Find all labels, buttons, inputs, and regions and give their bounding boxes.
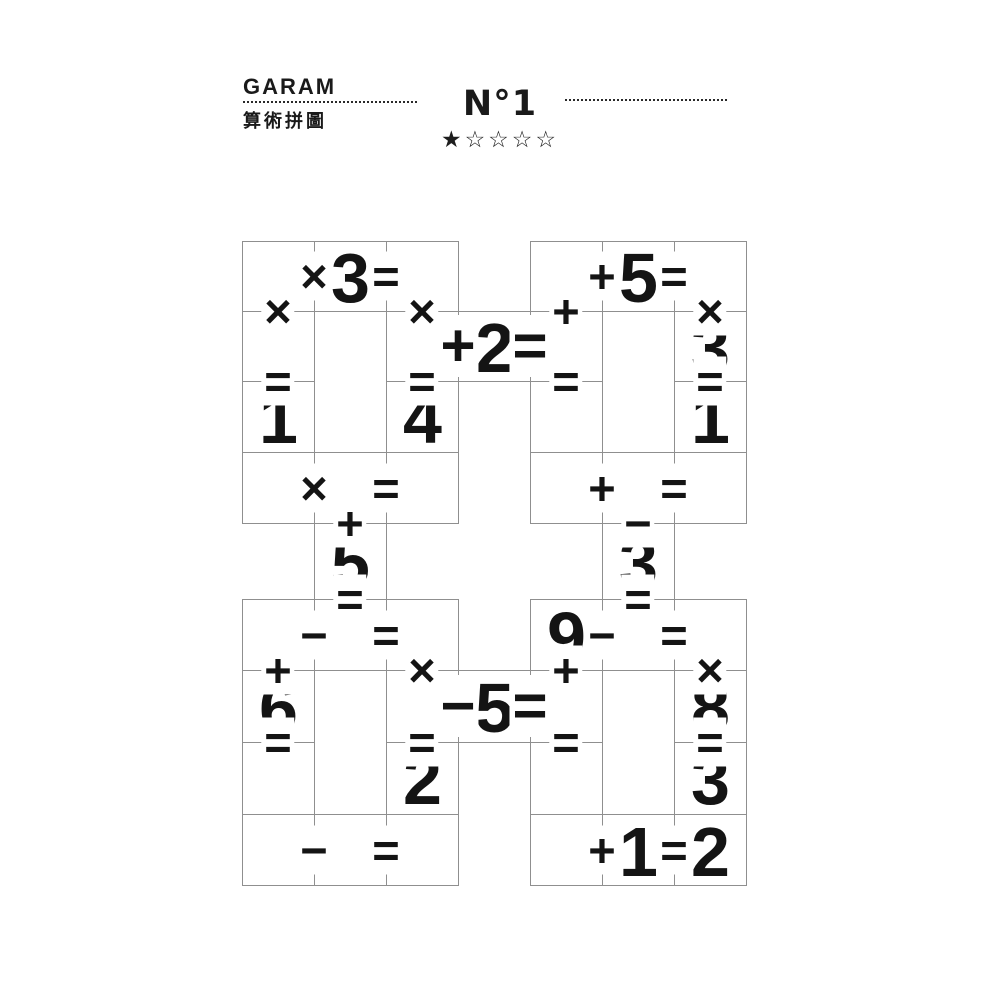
- minus-operator: −: [437, 675, 478, 737]
- plus-operator: +: [549, 646, 582, 695]
- cell-r6c5[interactable]: [602, 670, 675, 815]
- cell-r6c1[interactable]: [314, 670, 387, 815]
- plus-operator: +: [585, 463, 618, 512]
- plus-operator: +: [333, 499, 366, 548]
- equals-operator: =: [549, 357, 582, 406]
- equals-operator: =: [693, 718, 726, 767]
- given-digit: 1: [619, 814, 658, 887]
- equals-operator: =: [369, 825, 402, 874]
- plus-operator: +: [549, 287, 582, 336]
- equals-operator: =: [657, 610, 690, 659]
- equals-operator: =: [369, 610, 402, 659]
- minus-operator: −: [297, 610, 330, 659]
- minus-operator: −: [621, 499, 654, 548]
- equals-operator: =: [333, 575, 366, 624]
- cell-r1c5[interactable]: [602, 311, 675, 453]
- equals-operator: =: [405, 718, 438, 767]
- equals-operator: =: [369, 463, 402, 512]
- multiply-operator: ×: [405, 646, 438, 695]
- equals-operator: =: [621, 575, 654, 624]
- equals-operator: =: [657, 463, 690, 512]
- equals-operator: =: [509, 675, 550, 737]
- multiply-operator: ×: [405, 287, 438, 336]
- equals-operator: =: [261, 718, 294, 767]
- plus-operator: +: [585, 825, 618, 874]
- equals-operator: =: [693, 357, 726, 406]
- multiply-operator: ×: [261, 287, 294, 336]
- equals-operator: =: [405, 357, 438, 406]
- given-digit: 3: [331, 240, 370, 313]
- equals-operator: =: [657, 825, 690, 874]
- multiply-operator: ×: [693, 646, 726, 695]
- equals-operator: =: [657, 252, 690, 301]
- equals-operator: =: [261, 357, 294, 406]
- minus-operator: −: [585, 610, 618, 659]
- plus-operator: +: [437, 315, 478, 377]
- puzzle-page: GARAM 算術拼圖 N°1 ★☆☆☆☆ 31453125356298312×=…: [0, 0, 1000, 1000]
- multiply-operator: ×: [693, 287, 726, 336]
- equals-operator: =: [509, 315, 550, 377]
- cell-r1c1[interactable]: [314, 311, 387, 453]
- given-digit: 2: [475, 310, 514, 383]
- plus-operator: +: [585, 252, 618, 301]
- given-digit: 5: [619, 240, 658, 313]
- plus-operator: +: [261, 646, 294, 695]
- given-digit: 5: [475, 670, 514, 743]
- equals-operator: =: [369, 252, 402, 301]
- equals-operator: =: [549, 718, 582, 767]
- given-digit: 2: [691, 814, 730, 887]
- minus-operator: −: [297, 825, 330, 874]
- multiply-operator: ×: [297, 252, 330, 301]
- puzzle-grid: 31453125356298312×=××==×=+=+×==+=+=−=+=−…: [0, 0, 1000, 1000]
- multiply-operator: ×: [297, 463, 330, 512]
